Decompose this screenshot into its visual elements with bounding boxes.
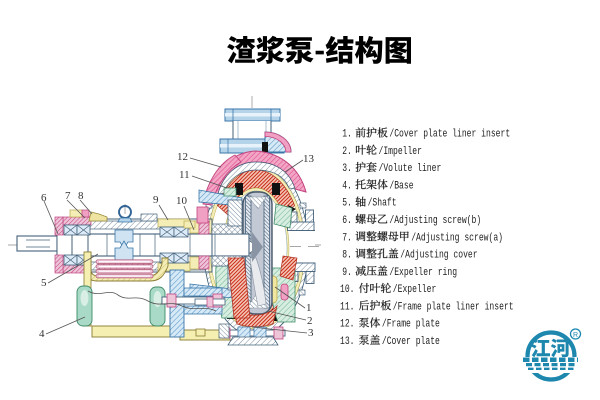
svg-text:4: 4: [39, 328, 45, 340]
svg-text:/Adjusting screw(a): /Adjusting screw(a): [411, 231, 503, 243]
svg-text:8.: 8.: [342, 249, 352, 261]
svg-text:/Impeller: /Impeller: [379, 145, 422, 157]
svg-text:6.: 6.: [342, 214, 352, 226]
svg-text:9: 9: [153, 194, 159, 206]
svg-text:/Cover plate: /Cover plate: [382, 335, 440, 347]
svg-text:12.: 12.: [340, 318, 354, 330]
svg-text:10: 10: [176, 195, 188, 207]
svg-text:13: 13: [303, 153, 315, 165]
svg-text:/Frame plate liner insert: /Frame plate liner insert: [393, 300, 514, 312]
svg-text:12: 12: [177, 151, 188, 163]
svg-text:5.: 5.: [342, 197, 352, 209]
svg-text:7.: 7.: [342, 231, 352, 243]
svg-text:/Expeller: /Expeller: [393, 283, 436, 295]
svg-text:10.: 10.: [340, 283, 354, 295]
svg-text:2: 2: [307, 315, 313, 327]
svg-text:/Expeller ring: /Expeller ring: [389, 266, 457, 278]
svg-text:1.: 1.: [342, 128, 352, 140]
svg-text:11: 11: [179, 169, 190, 181]
svg-text:6: 6: [41, 192, 47, 204]
svg-text:5: 5: [41, 277, 47, 289]
svg-text:/Shaft: /Shaft: [368, 197, 397, 209]
svg-text:/Frame plate: /Frame plate: [382, 318, 440, 330]
svg-text:/Cover plate liner insert: /Cover plate liner insert: [389, 128, 510, 140]
svg-text:1: 1: [306, 302, 312, 314]
svg-text:8: 8: [78, 190, 84, 202]
svg-text:2.: 2.: [342, 145, 352, 157]
svg-text:7: 7: [65, 190, 71, 202]
svg-text:3.: 3.: [342, 162, 352, 174]
svg-text:11.: 11.: [340, 300, 354, 312]
svg-text:/Volute liner: /Volute liner: [379, 162, 442, 174]
svg-text:9.: 9.: [342, 266, 352, 278]
svg-text:3: 3: [308, 327, 314, 339]
svg-text:/Adjusting cover: /Adjusting cover: [400, 249, 477, 261]
svg-text:/Base: /Base: [389, 179, 413, 191]
svg-text:R: R: [573, 332, 578, 339]
svg-text:13.: 13.: [340, 335, 354, 347]
svg-text:4.: 4.: [342, 179, 352, 191]
svg-text:/Adjusting screw(b): /Adjusting screw(b): [389, 214, 481, 226]
